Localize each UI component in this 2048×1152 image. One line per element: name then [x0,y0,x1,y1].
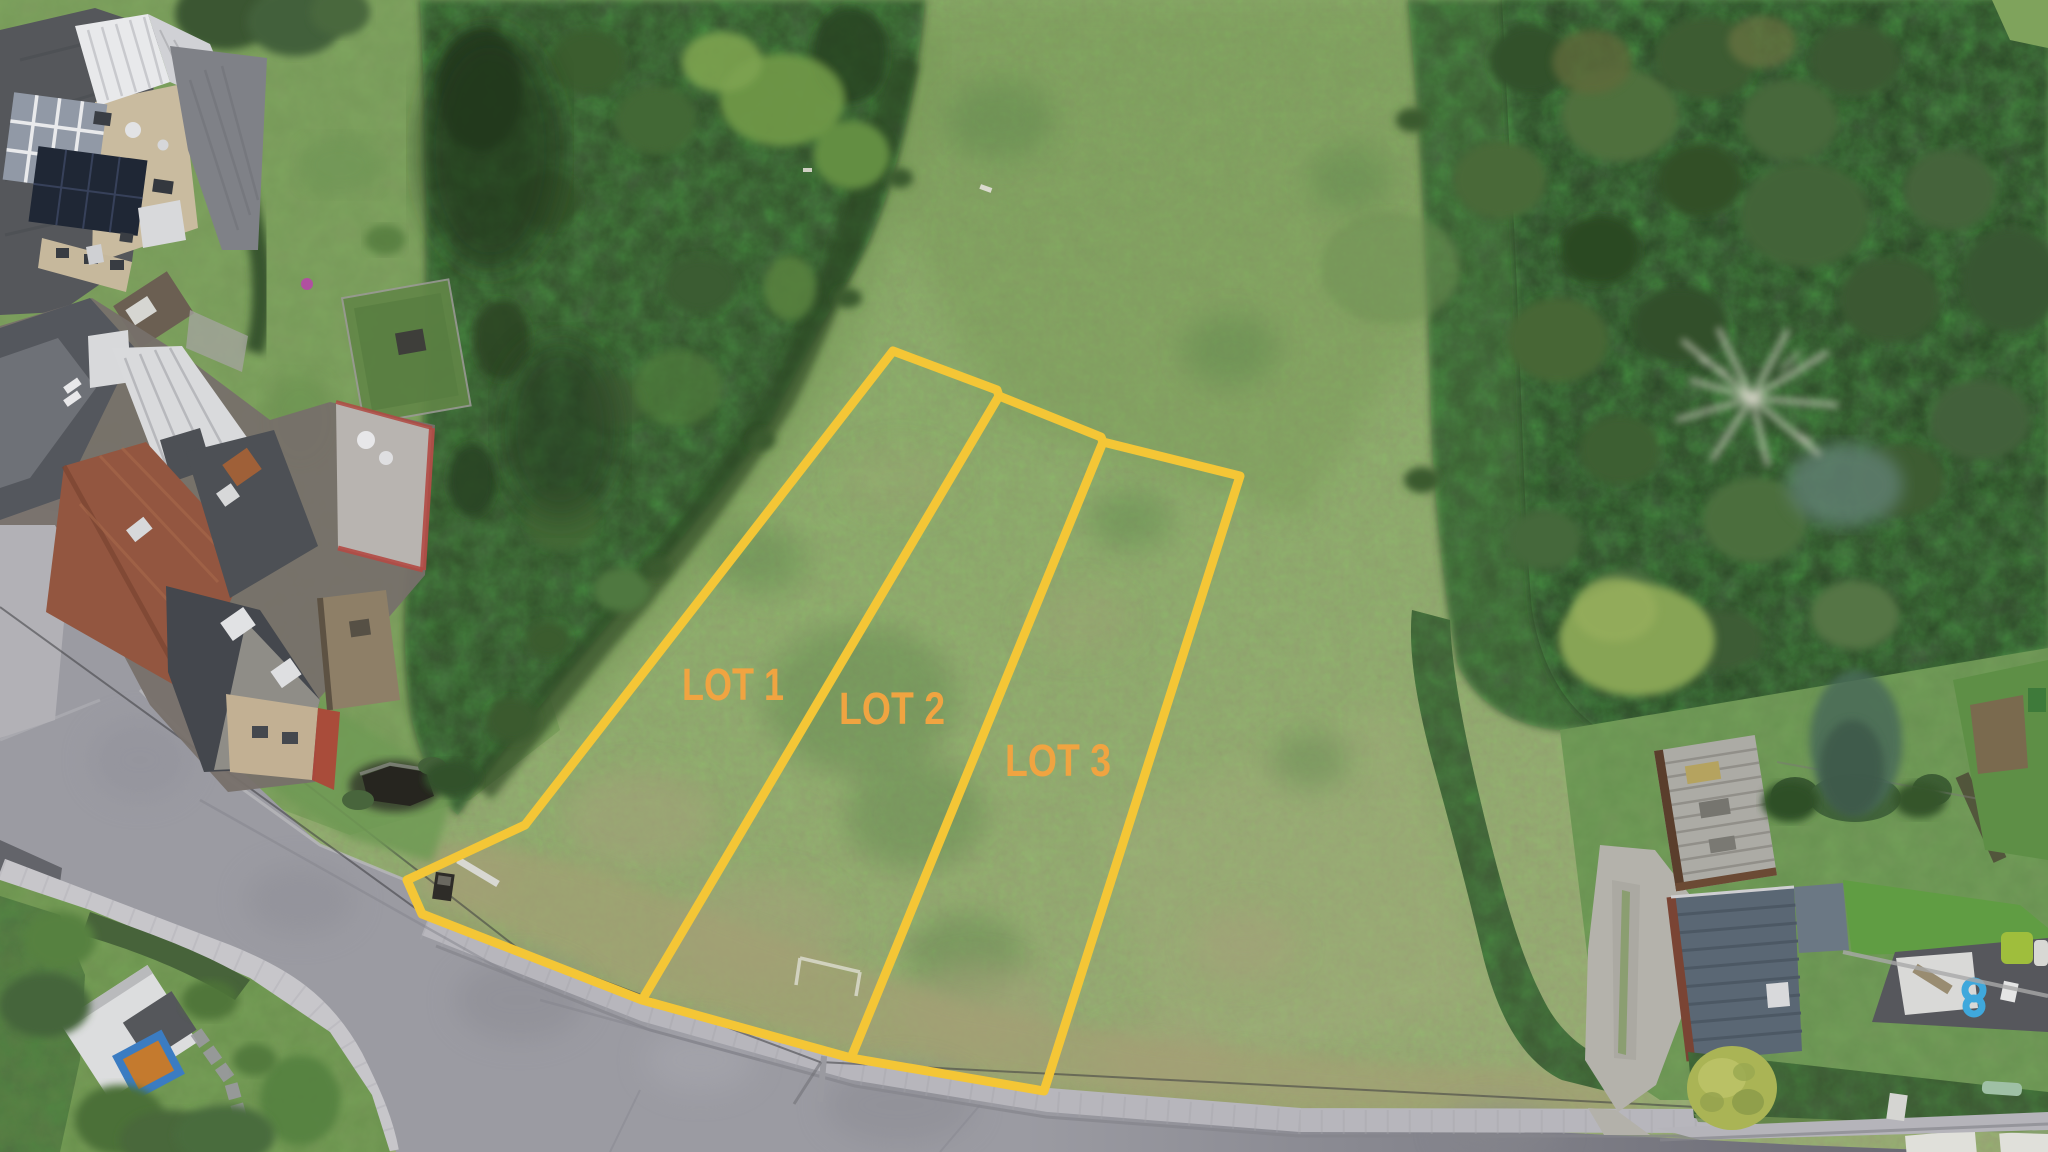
svg-text:LOT 2: LOT 2 [839,683,945,734]
svg-text:LOT 3: LOT 3 [1005,735,1111,786]
svg-text:LOT 1: LOT 1 [682,659,784,710]
